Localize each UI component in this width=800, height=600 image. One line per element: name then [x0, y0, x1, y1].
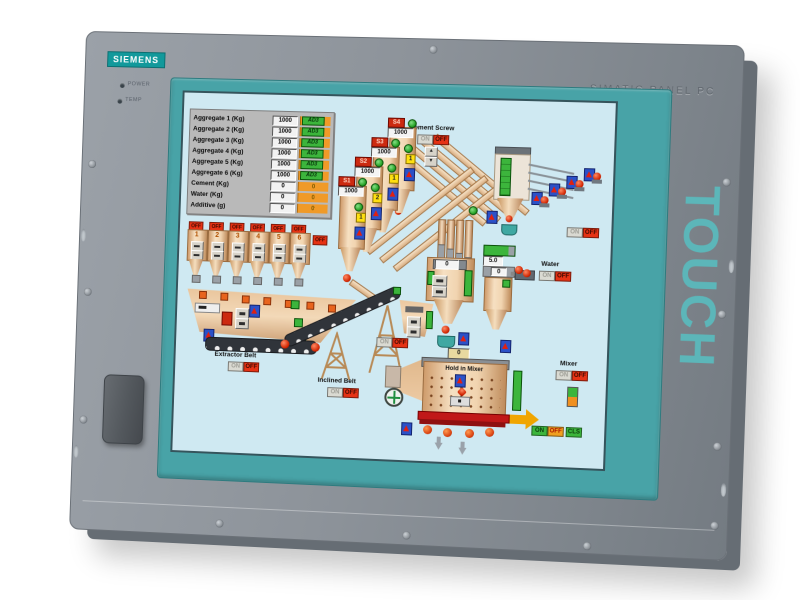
row-value: 0 [270, 181, 296, 192]
bin-number: 4 [249, 233, 268, 241]
bin-number: 2 [208, 232, 227, 240]
silo-tag: S1 [338, 176, 355, 186]
row-value: 0 [270, 192, 296, 203]
silo-counter: 1 [389, 174, 399, 184]
row-label: Aggregate 4 (Kg) [192, 147, 269, 156]
extractor-window [195, 303, 221, 314]
extractor-off-button[interactable]: OFF [243, 362, 259, 373]
gate-indicator-icon [328, 304, 336, 312]
water-off-button[interactable]: OFF [555, 271, 572, 282]
status-badge: AD3 [300, 160, 323, 170]
row-label: Aggregate 1 (Kg) [193, 114, 270, 123]
bin-button[interactable] [273, 253, 286, 263]
row-label: Aggregate 6 (Kg) [191, 169, 268, 178]
additive-valve-icon[interactable] [505, 215, 512, 222]
collector-funnel [501, 224, 517, 236]
inclined-belt-label: Inclined Belt [318, 377, 356, 385]
row-status: AD3 [299, 127, 330, 137]
edge-notch [73, 445, 78, 458]
discharge-arrow-icon [458, 448, 466, 455]
mixer-level-bar [512, 370, 522, 411]
usb-cover-flap[interactable] [102, 374, 145, 445]
mixer-gate-on-button[interactable]: ON [531, 426, 547, 437]
alarm-icon [354, 226, 365, 239]
dosing-pump [584, 168, 605, 185]
bin-button[interactable] [293, 253, 306, 263]
touch-label: TOUCH [663, 124, 735, 431]
discharge-arrow-icon [434, 443, 442, 450]
status-badge: AD3 [301, 138, 324, 148]
aggregate-bin-4: OFF4 [247, 223, 268, 289]
bin-number: 3 [228, 232, 247, 240]
row-status: AD3 [299, 149, 330, 159]
bin-number: 1 [187, 231, 206, 239]
gate-indicator-icon [294, 318, 303, 327]
edge-notch [81, 229, 86, 242]
surge-button[interactable] [406, 326, 420, 338]
additive-on-button[interactable]: ON [567, 227, 584, 238]
silo-value: 1000 [338, 186, 364, 197]
mixer-gauge-icon [384, 387, 404, 407]
photo-background: { "device": { "brand": "SIEMENS", "model… [0, 0, 800, 600]
mixer-label: Mixer [560, 360, 577, 368]
row-value: 1000 [272, 126, 298, 137]
mixer-wheel-icon [443, 428, 452, 437]
row-status: AD3 [299, 138, 330, 148]
mixer-hatch [450, 396, 470, 407]
alarm-icon [401, 422, 412, 435]
alarm-icon [404, 168, 415, 181]
cement-screw-on-button[interactable]: ON [417, 134, 433, 144]
gate-indicator-icon [263, 297, 271, 305]
aggregate-bin-1: OFF1 [186, 221, 207, 287]
bin-outlet [233, 276, 242, 284]
screw-icon [215, 519, 223, 527]
silo-counter: 2 [372, 193, 382, 203]
status-square [502, 279, 510, 287]
alarm-icon [371, 207, 382, 220]
alarm-icon [387, 188, 398, 201]
aggregate-bin-5: OFF5 [268, 224, 289, 290]
water-label: Water [541, 261, 559, 269]
gate-indicator-icon [199, 291, 207, 299]
row-status: AD3 [298, 171, 329, 181]
cement-screw-off-button[interactable]: OFF [433, 135, 449, 145]
mixer-wheel-icon [423, 425, 432, 434]
screw-icon [84, 288, 92, 296]
gate-indicator-icon [393, 287, 401, 295]
hopper-up-button[interactable] [432, 275, 447, 287]
silo-counter: 1 [405, 154, 415, 164]
power-led-icon [120, 83, 125, 88]
alarm-icon [486, 211, 497, 224]
extractor-button[interactable] [235, 318, 249, 329]
bin-outlet [294, 278, 303, 286]
screw-icon [88, 160, 96, 168]
row-label: Aggregate 5 (Kg) [192, 158, 269, 167]
bin-button[interactable] [191, 250, 204, 260]
edge-notch [721, 483, 727, 496]
gate-indicator-icon [291, 300, 300, 309]
silo-tag: S4 [388, 118, 405, 128]
alarm-icon [455, 374, 466, 387]
gate-indicator-icon [306, 302, 314, 310]
status-badge: AD3 [301, 127, 324, 137]
extractor-on-button[interactable]: ON [228, 361, 244, 372]
silo-value: 1000 [387, 128, 413, 139]
hopper-down-button[interactable] [432, 286, 447, 298]
aggregate-bin-6: OFF6 [288, 224, 309, 290]
bin-outlet [192, 275, 201, 283]
row-status: AD3 [300, 116, 331, 126]
silo-s1: S1 1000 1 [335, 176, 368, 283]
bin-outlet [212, 275, 221, 283]
mixer-status-bar [567, 387, 579, 408]
truss-tower [318, 331, 355, 380]
mixer-off-button[interactable]: OFF [572, 371, 589, 382]
status-badge: AD3 [300, 171, 323, 181]
additive-level-bar [499, 158, 511, 197]
temp-led-label: TEMP [125, 97, 142, 103]
mixer-gate-off-button[interactable]: OFF [547, 426, 564, 437]
simatic-panel-pc: SIEMENS POWER TEMP SIMATIC PANEL PC TOUC… [69, 31, 745, 561]
screw-icon [713, 442, 722, 450]
mixer-wheel-icon [485, 428, 494, 437]
row-value: 1000 [271, 159, 297, 170]
row-status: 0 [298, 182, 329, 192]
batch-table: Aggregate 1 (Kg)1000AD3 Aggregate 2 (Kg)… [186, 108, 335, 218]
level-bar [426, 311, 434, 329]
status-badge: AD3 [302, 116, 325, 126]
aggregate-bin-3: OFF3 [227, 222, 248, 288]
edge-notch [729, 260, 735, 273]
level-bar [464, 270, 473, 296]
row-value: 1000 [272, 137, 298, 148]
extractor-belt-label: Extractor Belt [214, 351, 256, 360]
mixer-feed-pipe [385, 365, 402, 388]
screw-icon [402, 531, 410, 539]
silo-counter: 1 [356, 213, 366, 223]
power-led-label: POWER [128, 81, 151, 87]
gate-indicator-icon [220, 293, 228, 301]
bin-outlet [253, 277, 262, 285]
silo-tag: S3 [371, 137, 388, 147]
additive-off-button[interactable]: OFF [583, 228, 600, 239]
display-bezel: S4 1000 1 S3 1000 1 S2 [157, 77, 673, 501]
temp-led-icon [117, 99, 122, 104]
aggregate-bin-2: OFF2 [206, 222, 227, 288]
hmi-screen[interactable]: S4 1000 1 S3 1000 1 S2 [170, 90, 618, 471]
row-label: Cement (Kg) [191, 180, 268, 189]
screw-icon [429, 45, 437, 53]
row-value: 0 [269, 202, 295, 213]
inclined-on-button[interactable]: ON [327, 387, 343, 398]
status-badge: AD3 [301, 149, 324, 159]
bin-button[interactable] [211, 251, 224, 261]
mixer-on-button[interactable]: ON [555, 370, 572, 381]
screw-icon [79, 415, 87, 423]
hopper-valve-icon[interactable] [441, 326, 449, 334]
row-value: 1000 [272, 115, 298, 126]
row-status: 0 [297, 193, 328, 203]
row-label: Aggregate 3 (Kg) [193, 136, 270, 145]
screw-icon [710, 522, 719, 531]
row-status: AD3 [298, 160, 329, 170]
cement-hopper-value: 0 [435, 259, 459, 270]
siemens-logo: SIEMENS [107, 51, 165, 68]
mixer-assembly: 0 Hold in Mixer [379, 341, 543, 454]
additive-system: ON OFF [486, 144, 611, 248]
row-label: Aggregate 2 (Kg) [193, 125, 270, 134]
mixer-wheel-icon [465, 429, 474, 438]
row-label: Additive (g) [190, 201, 267, 210]
row-value: 1000 [271, 148, 297, 159]
alarm-icon [500, 340, 512, 353]
discharge-arrow [510, 415, 526, 425]
bin-number: 6 [290, 234, 309, 242]
water-on-button[interactable]: ON [539, 271, 556, 282]
inclined-off-button[interactable]: OFF [343, 388, 359, 399]
bin-outlet [274, 278, 283, 286]
cement-screw-up-button[interactable]: ▲ [425, 147, 438, 157]
silo-tag: S2 [355, 157, 372, 167]
row-label: Water (Kg) [191, 191, 268, 200]
gate-indicator-icon [242, 295, 250, 303]
alarm-icon [249, 305, 260, 318]
water-system: 5.0 0 Water ON OFF [478, 243, 607, 358]
bin-number: 5 [269, 234, 288, 242]
water-setpoint: 5.0 [483, 256, 503, 267]
row-status: 0 [297, 204, 328, 214]
bin-button[interactable] [252, 252, 265, 262]
extractor-red-box [221, 311, 232, 325]
row-value: 1000 [270, 170, 296, 181]
bin-button[interactable] [231, 251, 244, 261]
water-value: 0 [491, 267, 507, 277]
mixer-gate-cls-button[interactable]: CLS [566, 427, 583, 438]
screw-icon [583, 542, 591, 550]
bins-off-button[interactable]: OFF [312, 235, 327, 245]
cement-screw-down-button[interactable]: ▼ [424, 157, 437, 167]
